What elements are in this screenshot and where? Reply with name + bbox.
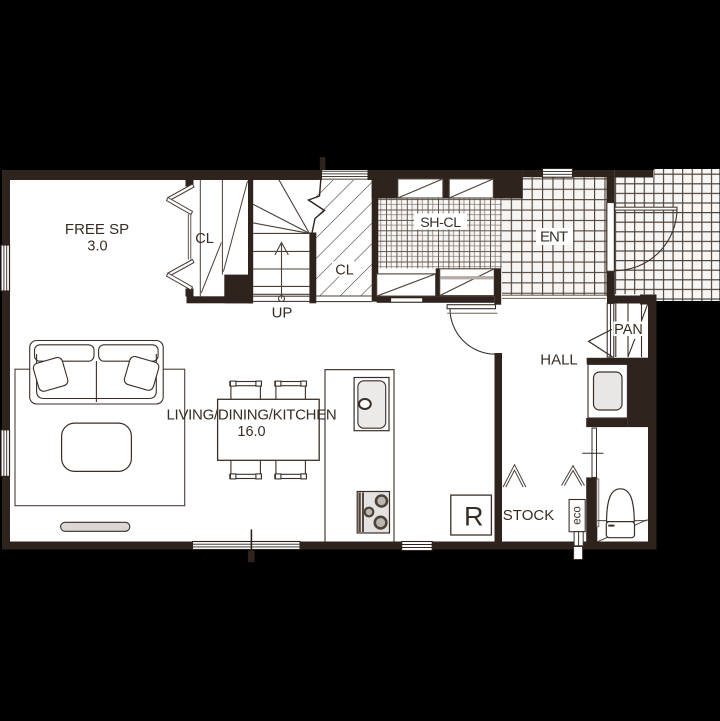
svg-text:eco: eco: [572, 506, 584, 525]
svg-text:16.0: 16.0: [237, 424, 265, 440]
svg-text:3.0: 3.0: [87, 239, 107, 255]
svg-text:LIVING/DINING/KITCHEN: LIVING/DINING/KITCHEN: [167, 407, 337, 424]
svg-text:CL: CL: [335, 263, 354, 279]
svg-text:R: R: [464, 502, 484, 532]
svg-text:FREE SP: FREE SP: [65, 221, 129, 238]
svg-text:ENT: ENT: [540, 229, 568, 246]
svg-text:CL: CL: [195, 231, 214, 247]
svg-text:UP: UP: [272, 305, 293, 322]
svg-text:HALL: HALL: [540, 352, 578, 369]
svg-text:SH-CL: SH-CL: [420, 215, 461, 231]
svg-text:PAN: PAN: [614, 322, 643, 338]
svg-text:STOCK: STOCK: [503, 507, 554, 524]
